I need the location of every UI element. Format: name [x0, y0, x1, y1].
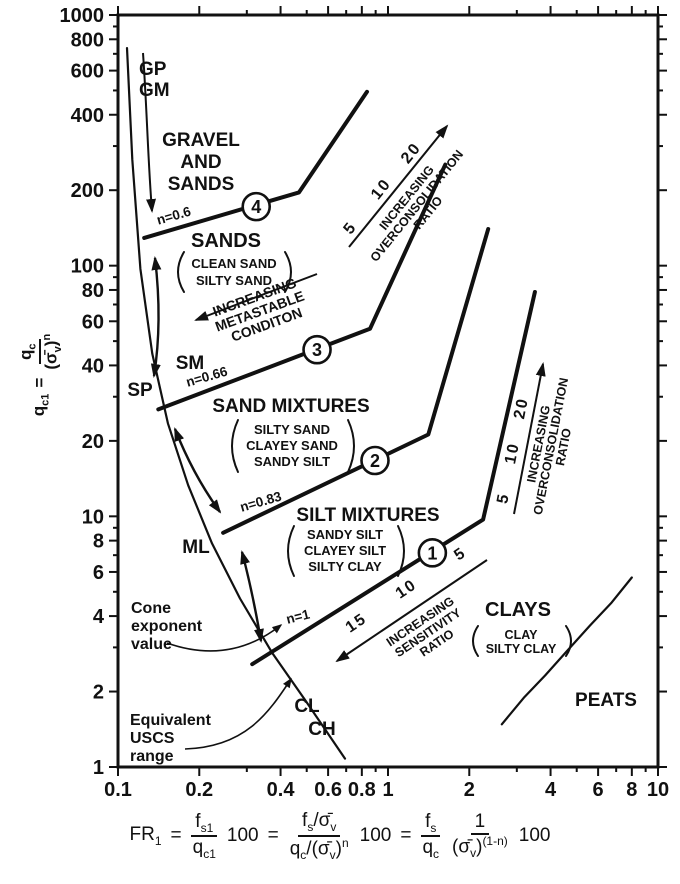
marker-number-4: 4: [251, 197, 261, 217]
clays-paren-left: [473, 626, 478, 656]
x-tick-label: 6: [593, 779, 604, 801]
cone-exponent-double-arrow-lower: [242, 552, 261, 641]
n-label-1: n=1: [285, 606, 312, 626]
x-tick-label: 0.2: [185, 779, 213, 801]
ocr-lower-value-10: 10: [502, 441, 523, 466]
plot-frame: [118, 15, 658, 767]
y-tick-label: 2: [93, 682, 104, 704]
formula-lhs: FR1: [130, 824, 162, 848]
uscs-range-callout-line3: range: [130, 748, 174, 765]
sensitivity-value-15: 15: [343, 610, 371, 636]
y-title-fraction: qc (σ̄v)n: [16, 332, 65, 372]
cone-exponent-double-arrow-upper: [154, 258, 159, 376]
formula-frac3: fs qc: [420, 811, 441, 862]
region-peats: PEATS: [575, 690, 637, 711]
ocr-lower-value-20: 20: [511, 396, 532, 421]
x-tick-label: 0.1: [104, 779, 132, 801]
formula-eq3: =: [400, 825, 411, 847]
uscs-range-callout-line2: USCS: [130, 730, 175, 747]
region-silt-mixtures-title: SILT MIXTURES: [296, 505, 439, 526]
sensitivity-value-10: 10: [393, 576, 421, 602]
silt-mixtures-paren-left: [288, 526, 294, 576]
cone-exponent-double-arrow-middle: [175, 429, 220, 512]
y-tick-label: 8: [93, 531, 104, 553]
formula-eq1: =: [171, 825, 182, 847]
region-sands-title: SANDS: [191, 230, 261, 252]
y-axis-title: qc1 = qc (σ̄v)n: [17, 312, 63, 436]
ocr-upper-value-20: 20: [398, 139, 425, 167]
y-tick-label: 10: [82, 506, 104, 528]
y-tick-label: 40: [82, 355, 104, 377]
marker-number-3: 3: [312, 340, 322, 360]
x-tick-label: 2: [464, 779, 475, 801]
uscs-label-sp: SP: [127, 380, 153, 401]
sensitivity-value-5: 5: [451, 544, 470, 564]
sand-mixtures-paren-right: [348, 420, 354, 472]
y-tick-label: 100: [71, 256, 104, 278]
cone-exponent-callout-line1: Cone: [131, 600, 171, 617]
region-sand-mixtures-title: SAND MIXTURES: [212, 396, 369, 417]
cone-exponent-callout-line2: exponent: [131, 618, 203, 635]
y-tick-label: 1: [93, 757, 104, 779]
region-silt-mixtures-sub2: CLAYEY SILT: [304, 543, 386, 558]
y-tick-label: 400: [71, 105, 104, 127]
y-title-equals: =: [30, 378, 50, 388]
sand-mixtures-paren-left: [232, 420, 238, 472]
x-tick-label: 10: [647, 779, 669, 801]
formula-100a: 100: [227, 825, 259, 847]
marker-number-1: 1: [427, 543, 437, 563]
ocr-upper-value-10: 10: [368, 175, 395, 203]
region-gravel-line1: GRAVEL: [162, 130, 240, 151]
uscs-label-ch: CH: [308, 719, 335, 740]
ocr-upper-value-5: 5: [340, 219, 360, 238]
x-tick-label: 1: [382, 779, 393, 801]
region-sand-mixtures-sub3: SANDY SILT: [254, 454, 330, 469]
y-tick-label: 80: [82, 280, 104, 302]
y-tick-label: 60: [82, 311, 104, 333]
chart-canvas: 0.10.20.40.60.81246810100080060040020010…: [0, 0, 680, 884]
sands-paren-left: [178, 252, 184, 292]
n-label-2: n=0.83: [238, 488, 283, 514]
sensitivity-text: INCREASING SENSITIVITY RATIO: [384, 592, 475, 672]
axis-ticks: [109, 6, 667, 776]
formula-frac4: 1 (σ̄v)(1-n): [450, 811, 510, 861]
x-tick-label: 0.4: [267, 779, 296, 801]
cpt-soil-classification-chart: 0.10.20.40.60.81246810100080060040020010…: [0, 0, 680, 884]
y-tick-label: 6: [93, 562, 104, 584]
region-clays-sub1: CLAY: [505, 628, 539, 642]
x-tick-label: 8: [626, 779, 637, 801]
y-tick-label: 4: [93, 606, 105, 628]
y-tick-label: 20: [82, 431, 104, 453]
uscs-label-ml: ML: [182, 537, 210, 558]
y-tick-label: 1000: [60, 5, 105, 27]
region-sand-mixtures-sub2: CLAYEY SAND: [246, 438, 338, 453]
region-gravel-line3: SANDS: [168, 174, 235, 195]
x-axis-formula: FR1 = fs1 qc1 100 = fs/σ̄v qc/(σ̄v)n 100…: [0, 810, 680, 863]
region-clays-sub2: SILTY CLAY: [486, 642, 557, 656]
region-sand-mixtures-sub1: SILTY SAND: [254, 422, 330, 437]
x-tick-label: 4: [545, 779, 557, 801]
uscs-range-callout-line1: Equivalent: [130, 712, 212, 729]
y-tick-label: 800: [71, 29, 104, 51]
marker-number-2: 2: [370, 451, 380, 471]
x-tick-label: 0.6: [314, 779, 342, 801]
uscs-label-gm: GM: [139, 80, 170, 101]
formula-frac2: fs/σ̄v qc/(σ̄v)n: [288, 810, 351, 863]
uscs-label-cl: CL: [294, 696, 320, 717]
cone-exponent-callout-line3: value: [131, 636, 172, 653]
ocr-lower-value-5: 5: [494, 491, 513, 505]
formula-100c: 100: [519, 825, 551, 847]
region-gravel-line2: AND: [180, 152, 221, 173]
region-clays-title: CLAYS: [485, 599, 551, 621]
y-title-lhs: qc1: [29, 394, 51, 417]
y-tick-label: 600: [71, 61, 104, 83]
region-silt-mixtures-sub3: SILTY CLAY: [308, 559, 382, 574]
x-tick-label: 0.8: [348, 779, 376, 801]
y-tick-label: 200: [71, 180, 104, 202]
formula-frac1: fs1 qc1: [191, 811, 218, 862]
region-silt-mixtures-sub1: SANDY SILT: [307, 527, 383, 542]
formula-eq2: =: [268, 825, 279, 847]
uscs-label-gp: GP: [139, 59, 167, 80]
formula-100b: 100: [360, 825, 392, 847]
region-sands-sub1: CLEAN SAND: [191, 256, 276, 271]
